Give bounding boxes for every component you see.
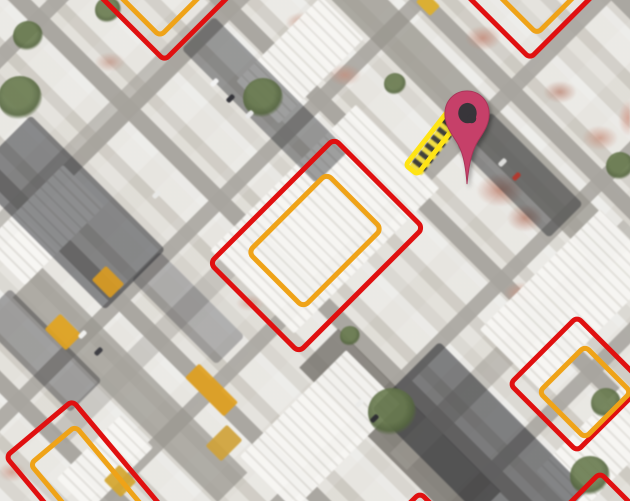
- tree: [13, 21, 43, 51]
- map-viewport[interactable]: [0, 0, 630, 501]
- tree: [368, 388, 416, 436]
- tree: [0, 76, 42, 120]
- pin-hole-notch: [467, 114, 476, 123]
- tree: [606, 152, 630, 180]
- tree: [384, 73, 406, 95]
- location-pin[interactable]: [443, 89, 491, 187]
- tree: [340, 326, 360, 346]
